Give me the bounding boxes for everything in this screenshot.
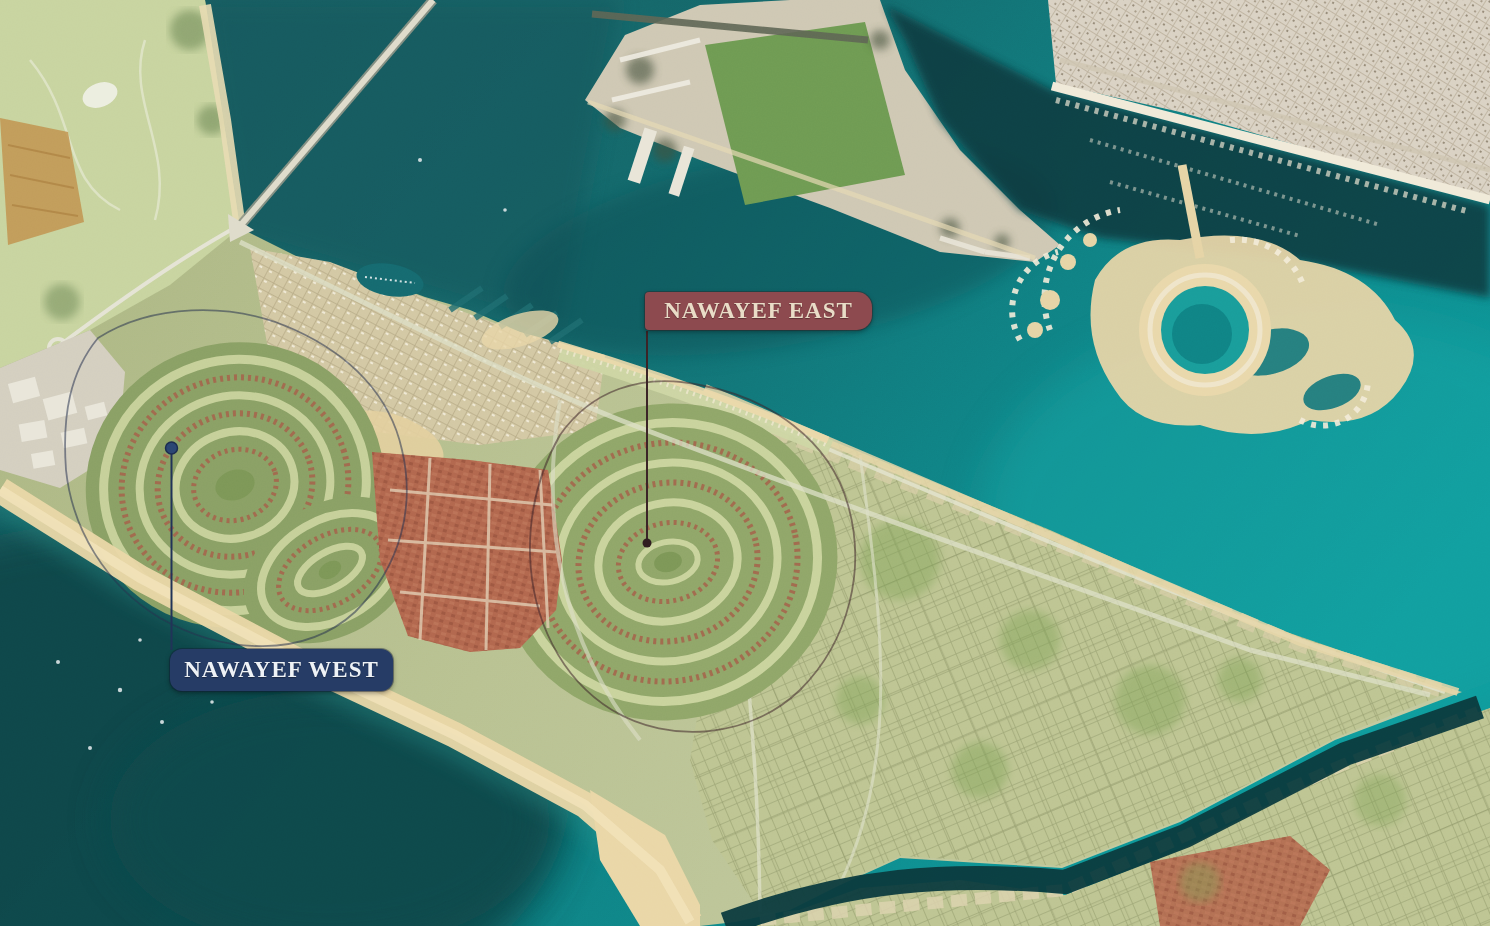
map-canvas: NAWAYEF EAST NAWAYEF WEST: [0, 0, 1490, 926]
region-label-west[interactable]: NAWAYEF WEST: [170, 649, 393, 691]
region-label-east-text: NAWAYEF EAST: [664, 298, 853, 324]
grain-texture: [0, 0, 1490, 926]
region-label-east[interactable]: NAWAYEF EAST: [645, 292, 872, 330]
satellite-map: [0, 0, 1490, 926]
region-label-west-text: NAWAYEF WEST: [184, 657, 379, 683]
